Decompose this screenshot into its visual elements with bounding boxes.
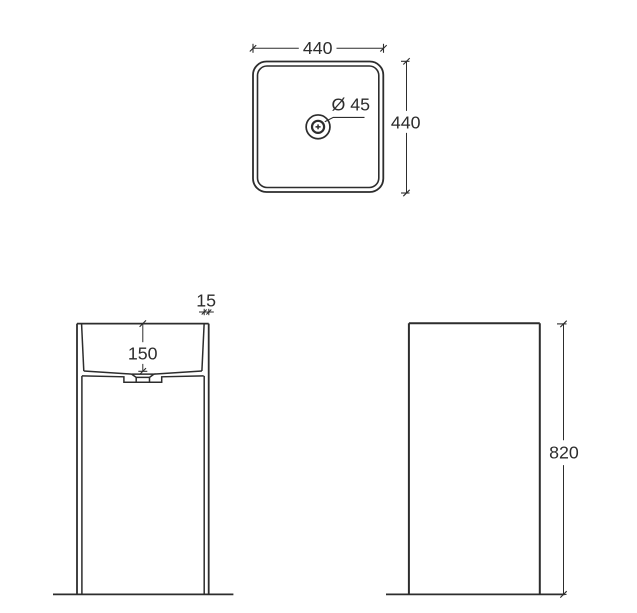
svg-text:15: 15 xyxy=(196,290,216,310)
svg-text:440: 440 xyxy=(303,38,333,58)
svg-text:440: 440 xyxy=(391,112,421,132)
svg-text:Ø 45: Ø 45 xyxy=(332,94,371,114)
svg-text:820: 820 xyxy=(549,443,579,463)
svg-text:150: 150 xyxy=(128,344,158,364)
